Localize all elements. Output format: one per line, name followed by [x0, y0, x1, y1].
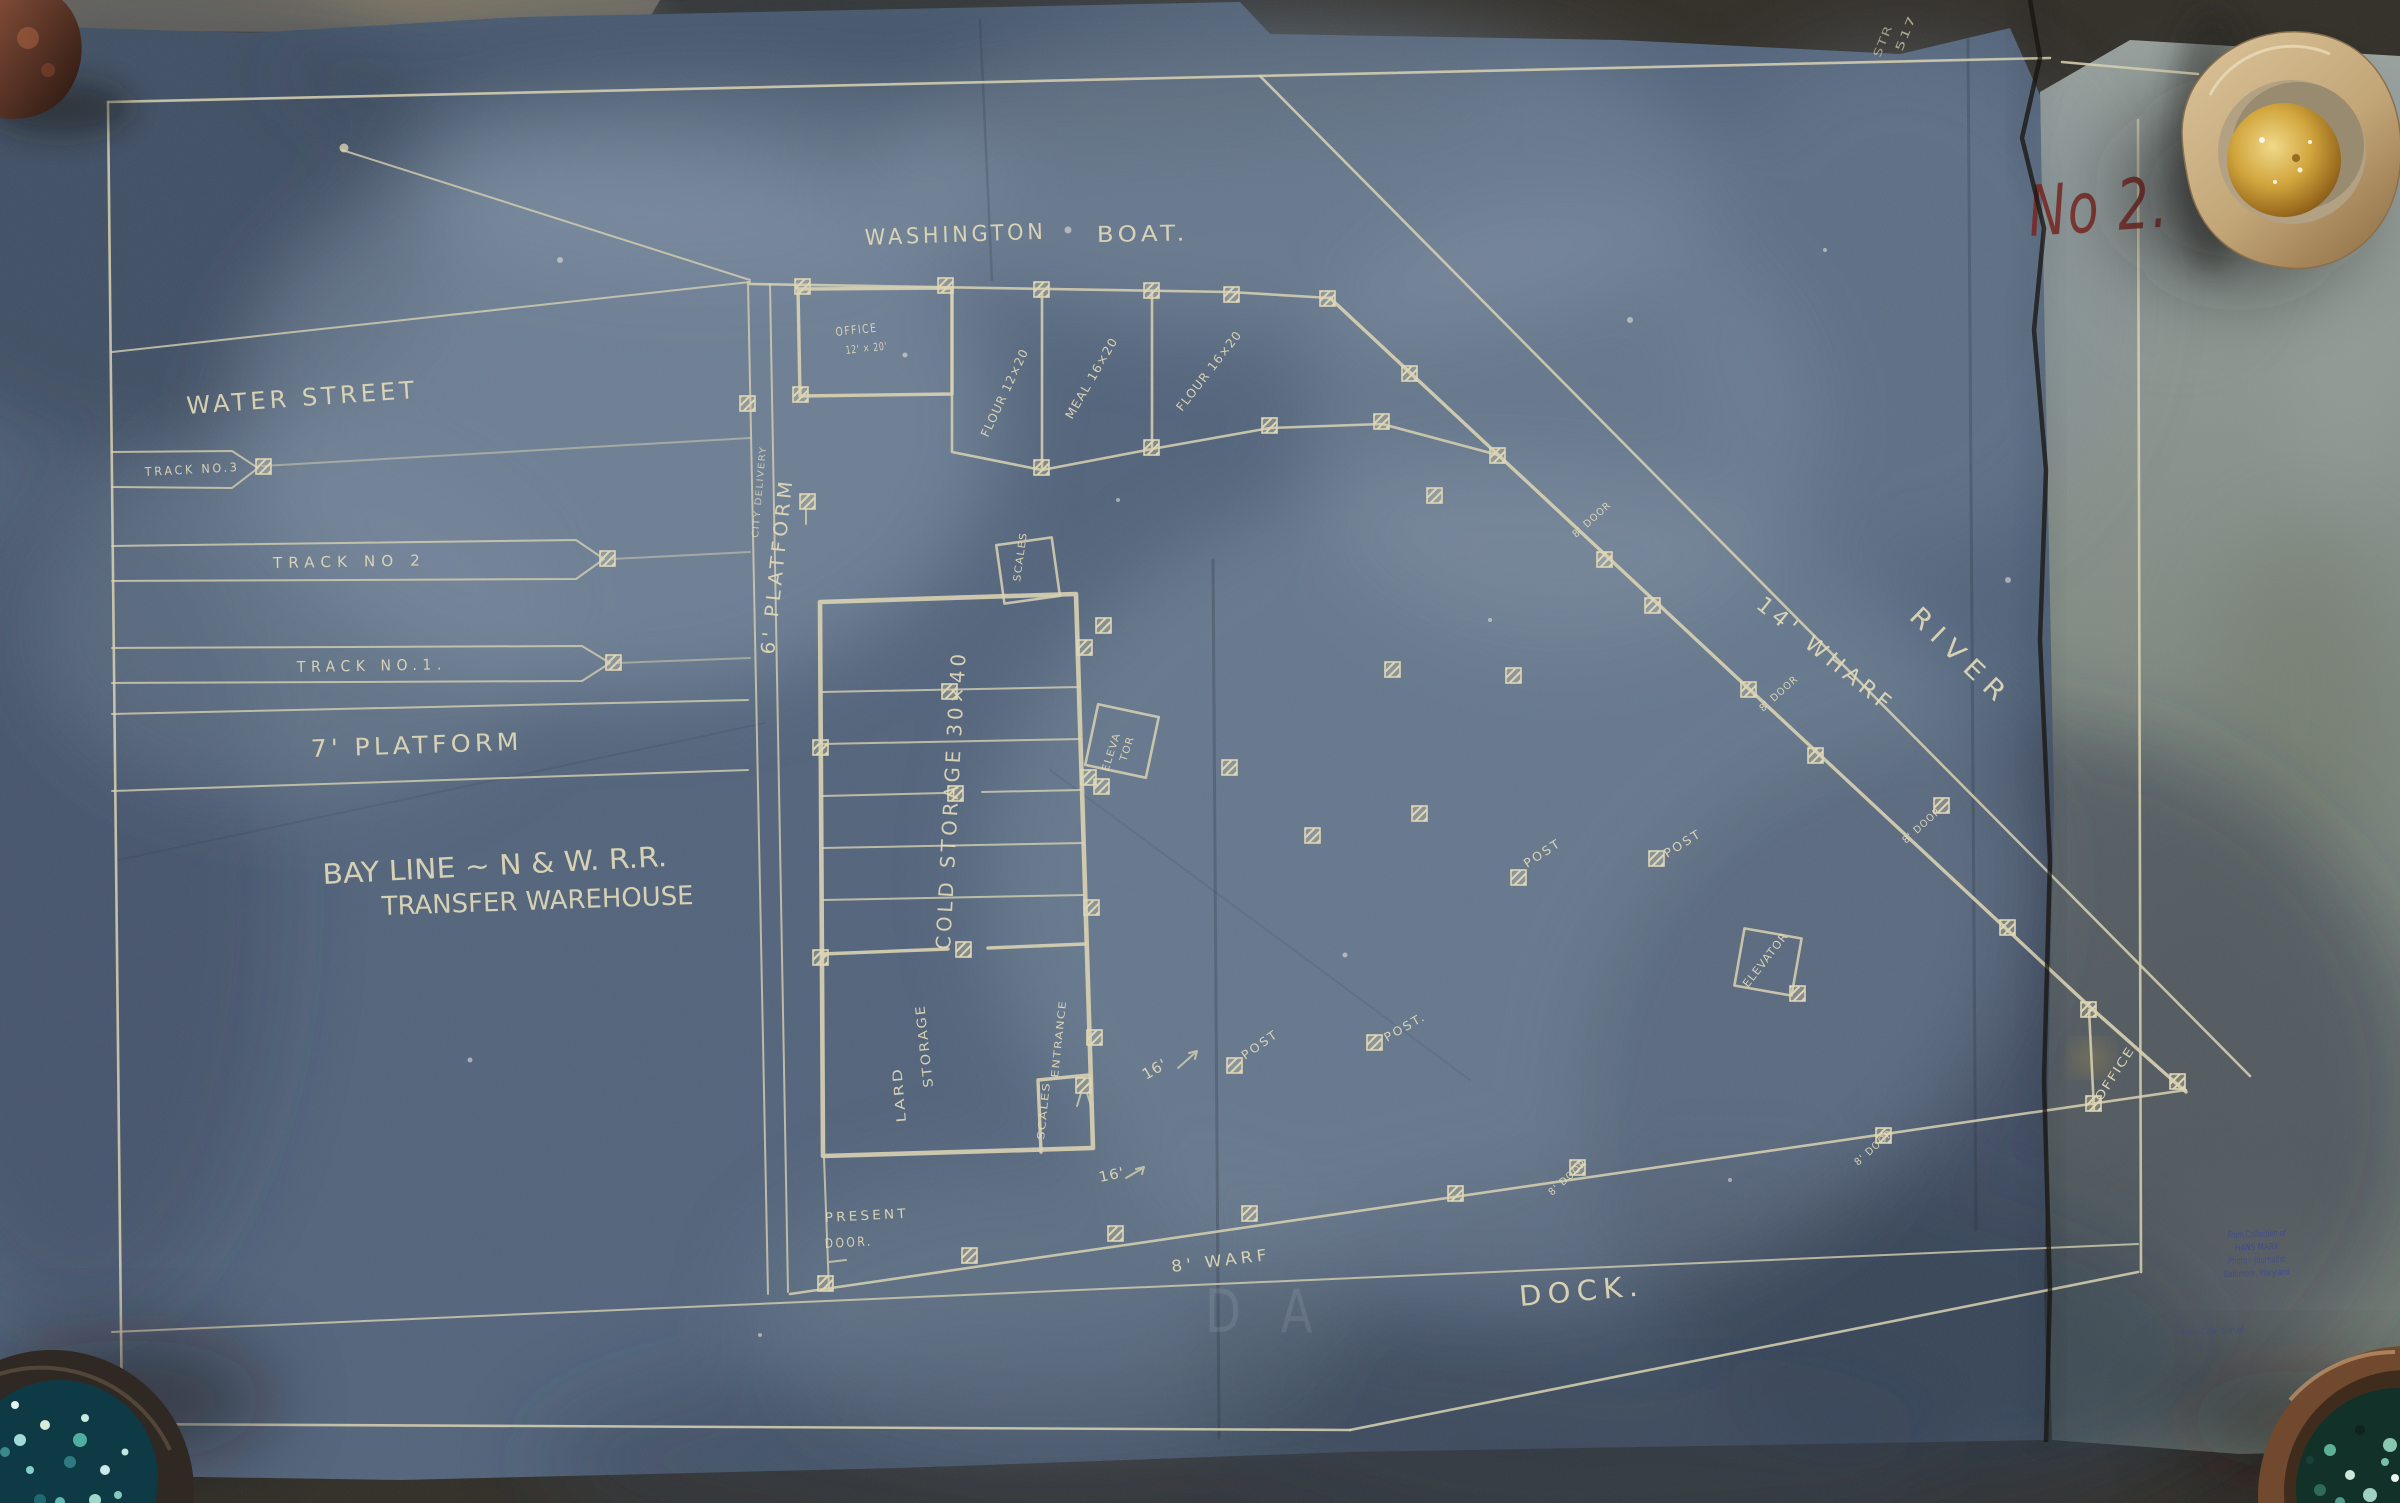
photograph-of-blueprint: WASHINGTONBOAT.WATER STREETTRACK NO.3TRA… — [0, 0, 2400, 1503]
stamp1-line2: HANS MARX — [2235, 1242, 2279, 1254]
stamp1-line3: Photo - Journalist — [2228, 1255, 2287, 1267]
ghost-letters: D A — [1205, 1277, 1325, 1347]
benchmark-symbol — [1076, 1078, 1091, 1093]
blueprint-photo: WASHINGTONBOAT.WATER STREETTRACK NO.3TRA… — [0, 0, 2400, 1503]
stamp2-line2: H — [2196, 1343, 2203, 1353]
present-door: DOOR. — [824, 1235, 873, 1252]
track-no-1: TRACK NO.1. — [296, 655, 447, 676]
benchmark-symbol — [800, 494, 815, 509]
boat: BOAT. — [1097, 221, 1189, 248]
stamp1-line1: From Collection of — [2228, 1229, 2287, 1241]
track-no-2: TRACK NO 2 — [272, 551, 426, 572]
amber-glass — [2227, 103, 2341, 217]
